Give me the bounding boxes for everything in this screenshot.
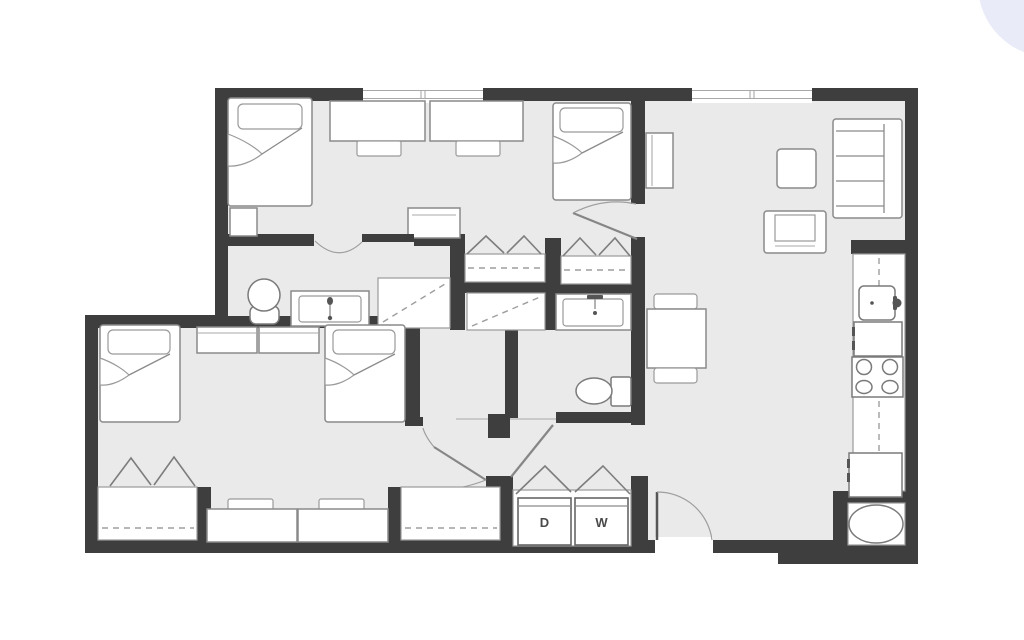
dining-table — [647, 309, 706, 368]
range — [852, 357, 903, 397]
shower-middle — [467, 293, 545, 330]
dryer-label: D — [540, 515, 549, 530]
sink-vanity — [556, 294, 631, 330]
console — [646, 133, 673, 188]
bed — [228, 98, 312, 206]
floor-plan-image: D W — [0, 0, 1024, 640]
toilet — [248, 279, 280, 324]
coffee-table — [777, 149, 816, 188]
armchair — [764, 211, 826, 253]
side-table — [408, 208, 460, 238]
washer: W — [575, 498, 628, 545]
sink-vanity — [291, 291, 369, 326]
shower — [378, 278, 450, 328]
dresser — [259, 327, 319, 353]
closet — [401, 487, 500, 540]
dining-chair — [654, 294, 697, 309]
bed — [553, 103, 631, 200]
dresser — [197, 327, 257, 353]
dryer: D — [518, 498, 571, 545]
refrigerator — [847, 453, 902, 497]
toilet — [576, 377, 631, 406]
bed — [325, 325, 405, 422]
bathroom-left-door-leaf — [362, 234, 414, 242]
window — [692, 86, 812, 103]
kitchen-sink — [859, 286, 902, 320]
dishwasher — [852, 322, 902, 356]
washer-label: W — [595, 515, 608, 530]
dining-chair — [654, 368, 697, 383]
dining-area — [647, 294, 706, 383]
sofa — [833, 119, 902, 218]
bed — [100, 325, 180, 422]
nightstand — [230, 208, 257, 236]
water-heater — [848, 503, 905, 545]
corner-decor-blob — [978, 0, 1024, 57]
